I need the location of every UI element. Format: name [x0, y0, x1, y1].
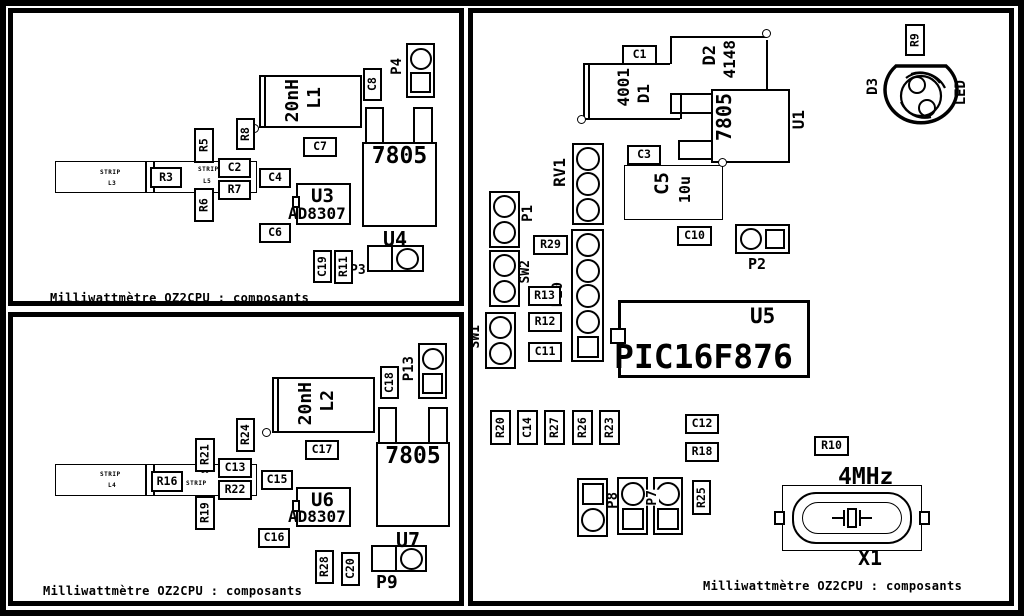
l2-ref: L2: [319, 390, 337, 412]
l2-value: 20nH: [297, 382, 315, 425]
stripline2-ref: L5: [203, 179, 211, 185]
d1-wire: [588, 63, 590, 120]
regulator-tab: [413, 107, 433, 144]
crystal-symbol-icon: [832, 505, 872, 531]
strip-divider: [145, 162, 147, 192]
label-r19: R19: [195, 496, 215, 530]
p7-ref: P7: [646, 490, 659, 506]
caption-bottom-left: Milliwattmètre OZ2CPU : composants: [43, 584, 302, 598]
p2-ref: P2: [748, 257, 766, 272]
l2-pin-dot: [262, 428, 271, 437]
connector-p7: [617, 477, 648, 535]
label-c6: C6: [259, 223, 291, 243]
label-r22: R22: [218, 480, 252, 500]
rv1-pad: [576, 147, 600, 171]
p13-pad-square: [422, 373, 443, 394]
l1-ref: L1: [306, 87, 324, 109]
caption-right: Milliwattmètre OZ2CPU : composants: [703, 579, 962, 593]
x1-tab: [919, 511, 930, 525]
p10-pad: [576, 233, 600, 257]
capacitor-c5: [624, 165, 723, 220]
label-c14: C14: [517, 410, 538, 445]
d2-wire: [670, 36, 767, 38]
u3-value: AD8307: [288, 206, 346, 222]
label-r13: R13: [528, 286, 561, 306]
d3-value: LED: [954, 80, 968, 105]
regulator-tab: [365, 107, 384, 144]
connector-sw2: [489, 250, 520, 307]
c5-ref: C5: [653, 172, 672, 195]
label-r9: R9: [905, 24, 925, 56]
d2-wire: [766, 40, 768, 89]
d2-value: 4148: [722, 40, 738, 79]
led-graphic: [882, 56, 960, 132]
d2-wire: [670, 36, 672, 64]
connector-p10: [571, 229, 604, 362]
label-c7: C7: [303, 137, 337, 157]
label-c16: C16: [258, 528, 290, 548]
x1-tab: [774, 511, 785, 525]
p10-pad: [576, 284, 600, 308]
rv1-ref: RV1: [552, 158, 568, 187]
d3-ref: D3: [866, 78, 880, 95]
p1-ref: P1: [521, 205, 535, 222]
d1-value: 4001: [616, 68, 632, 107]
p2-pad-square: [765, 229, 785, 249]
p10-pad-square: [577, 336, 599, 358]
p7-pad-round: [621, 482, 645, 506]
sw2-pad: [493, 280, 516, 303]
strip-divider: [145, 465, 147, 495]
regulator-7805-tl: 7805: [362, 142, 437, 227]
p8-ref: P8: [606, 492, 620, 509]
u7-pad-square: [373, 547, 397, 570]
p13-ref: P13: [402, 356, 416, 381]
p10-pad: [576, 259, 600, 283]
sw1-pad: [489, 316, 512, 339]
label-r11: R11: [334, 250, 353, 284]
p9-ref: P9: [376, 574, 398, 592]
stripline-text: STRIP: [100, 472, 121, 478]
label-r24: R24: [236, 418, 255, 452]
connector-p4: [406, 43, 435, 98]
d2-ref: D2: [702, 45, 719, 65]
x1-ref: X1: [858, 548, 882, 568]
c5-value: 10u: [678, 176, 693, 203]
regulator-tab: [378, 407, 397, 444]
label-r26: R26: [572, 410, 593, 445]
label-r25: R25: [692, 480, 711, 515]
label-c19: C19: [313, 250, 332, 283]
stripline2-text: STRIP: [186, 481, 207, 487]
u1-pin-dot: [718, 158, 727, 167]
pcb-component-layout: STRIP L3 R3 STRIP L5 R5 R6 C2 R7 C4 R8 2…: [0, 0, 1024, 616]
u1-value: 7805: [714, 93, 734, 141]
u1-ref: U1: [791, 110, 807, 129]
label-r3: R3: [150, 167, 182, 188]
label-r28: R28: [315, 550, 334, 584]
label-r18: R18: [685, 442, 719, 462]
label-c13: C13: [218, 458, 252, 478]
u4-ref: U4: [383, 229, 407, 249]
p13-pad-round: [422, 348, 444, 370]
u5-value: PIC16F876: [614, 340, 793, 373]
label-r21: R21: [195, 438, 215, 472]
p4-ref: P4: [390, 58, 404, 75]
label-r6: R6: [194, 188, 214, 222]
u7-ref: U7: [396, 530, 420, 550]
label-c11: C11: [528, 342, 562, 362]
d1-wire: [583, 63, 585, 120]
label-c4: C4: [259, 168, 291, 188]
label-r8: R8: [236, 118, 255, 150]
rv1-pad: [576, 198, 600, 222]
trimmer-rv1: [572, 143, 604, 225]
u5-ref: U5: [750, 306, 775, 327]
label-c1: C1: [622, 45, 657, 65]
p1-pad: [493, 221, 516, 244]
p7-pad-square: [622, 508, 644, 530]
connector-sw1: [485, 312, 516, 369]
connector-p13: [418, 343, 447, 399]
d2-pin-dot: [762, 29, 771, 38]
caption-top-left: Milliwattmètre OZ2CPU : composants: [50, 291, 309, 305]
regulator-text: 7805: [385, 445, 440, 525]
d1-pin-dot: [577, 115, 586, 124]
label-r10: R10: [814, 436, 849, 456]
l1-value: 20nH: [284, 79, 302, 122]
connector-p2: [735, 224, 790, 254]
x1-value: 4MHz: [838, 466, 893, 489]
p4-pad-round: [410, 48, 432, 70]
label-c17: C17: [305, 440, 339, 460]
sw1-ref: SW1: [469, 325, 482, 348]
label-r12: R12: [528, 312, 562, 332]
label-c20: C20: [341, 552, 360, 586]
connector-p8: [577, 478, 608, 537]
label-c10: C10: [677, 226, 712, 246]
label-c12: C12: [685, 414, 719, 434]
label-r20: R20: [490, 410, 511, 445]
p2-pad-round: [740, 228, 762, 250]
sw2-pad: [493, 254, 516, 277]
connector-unlabeled: [653, 477, 683, 535]
l1-inner-edge: [264, 77, 266, 126]
p1-pad: [493, 195, 516, 218]
label-r5: R5: [194, 128, 214, 163]
label-r23: R23: [599, 410, 620, 445]
stripline-text: STRIP: [100, 170, 121, 176]
label-c2: C2: [218, 158, 251, 178]
label-c8: C8: [363, 68, 382, 101]
label-c15: C15: [261, 470, 293, 490]
label-c18: C18: [380, 366, 399, 399]
stripline-ref: L3: [108, 181, 116, 187]
regulator-tab: [428, 407, 448, 444]
label-r16: R16: [151, 471, 183, 492]
sw1-pad: [489, 342, 512, 365]
sw2-ref: SW2: [519, 260, 532, 283]
stripline2-text: STRIP: [198, 167, 219, 173]
u1-tab: [678, 140, 713, 160]
p10-pad: [576, 310, 600, 334]
label-r27: R27: [544, 410, 565, 445]
d1-ref: D1: [636, 84, 652, 103]
rv1-pad: [576, 172, 600, 196]
regulator-7805-bl: 7805: [376, 442, 450, 527]
p8-pad-square: [582, 483, 604, 505]
pad-square: [657, 508, 679, 530]
stripline-ref: L4: [108, 483, 116, 489]
p4-pad-square: [410, 72, 431, 93]
label-r29: R29: [533, 235, 568, 255]
label-c3: C3: [627, 145, 661, 165]
regulator-text: 7805: [372, 145, 427, 225]
u6-value: AD8307: [288, 509, 346, 525]
l2-inner-edge: [277, 379, 279, 431]
d1-wire: [680, 95, 682, 119]
d1-wire: [585, 118, 680, 120]
p8-pad-round: [581, 508, 605, 532]
connector-p1: [489, 191, 520, 248]
label-r7: R7: [218, 180, 251, 200]
u1-tab: [670, 93, 713, 114]
